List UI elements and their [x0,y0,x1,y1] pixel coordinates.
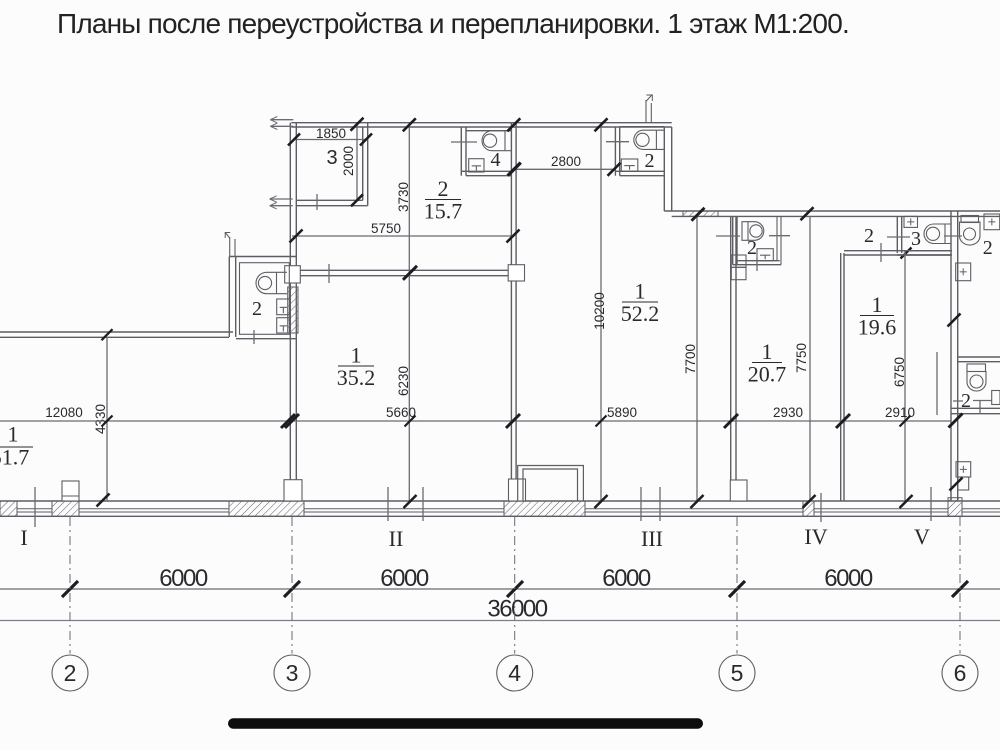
svg-text:1: 1 [351,343,362,368]
svg-text:4: 4 [508,660,521,686]
svg-text:2910: 2910 [885,405,915,420]
svg-text:6000: 6000 [380,565,429,592]
svg-text:5890: 5890 [607,405,637,420]
svg-text:19.6: 19.6 [858,315,897,340]
svg-text:1850: 1850 [316,126,346,141]
svg-text:V: V [914,524,930,549]
svg-text:I: I [20,525,27,550]
svg-text:6000: 6000 [602,565,651,592]
svg-text:7700: 7700 [683,344,698,374]
svg-text:6000: 6000 [159,565,208,592]
svg-text:51.7: 51.7 [0,445,29,470]
svg-text:3: 3 [286,660,299,686]
svg-text:12080: 12080 [45,405,83,420]
svg-text:10200: 10200 [592,292,607,330]
svg-text:2: 2 [747,237,757,259]
svg-text:2: 2 [961,390,971,412]
svg-text:4: 4 [491,149,501,171]
svg-text:4330: 4330 [93,404,108,434]
svg-text:2000: 2000 [341,146,356,176]
svg-text:52.2: 52.2 [621,301,660,326]
svg-text:2: 2 [983,237,993,259]
svg-text:1: 1 [762,339,773,364]
svg-text:2: 2 [864,225,874,247]
svg-text:III: III [641,526,663,551]
svg-text:20.7: 20.7 [748,362,787,387]
svg-text:1: 1 [8,422,19,447]
svg-text:1: 1 [635,279,646,304]
svg-text:2800: 2800 [551,154,581,169]
svg-text:3: 3 [326,147,337,169]
svg-text:2: 2 [252,298,262,320]
svg-text:Планы после переустройства и п: Планы после переустройства и перепланиро… [57,8,849,39]
svg-text:6: 6 [954,660,967,686]
svg-text:36000: 36000 [487,596,547,623]
svg-text:35.2: 35.2 [337,365,376,390]
svg-text:2: 2 [645,150,655,172]
svg-text:2: 2 [64,660,77,686]
svg-text:II: II [389,526,404,551]
svg-text:5750: 5750 [371,221,401,236]
svg-text:7750: 7750 [794,343,809,373]
svg-text:2: 2 [438,176,449,201]
svg-text:15.7: 15.7 [424,199,463,224]
svg-text:6750: 6750 [892,357,907,387]
svg-text:3: 3 [911,228,921,250]
svg-text:IV: IV [804,524,827,549]
svg-text:5: 5 [731,660,744,686]
svg-text:5660: 5660 [386,405,416,420]
svg-text:1: 1 [872,292,883,317]
svg-text:2930: 2930 [773,405,803,420]
svg-text:6230: 6230 [396,366,411,396]
svg-text:6000: 6000 [824,565,873,592]
